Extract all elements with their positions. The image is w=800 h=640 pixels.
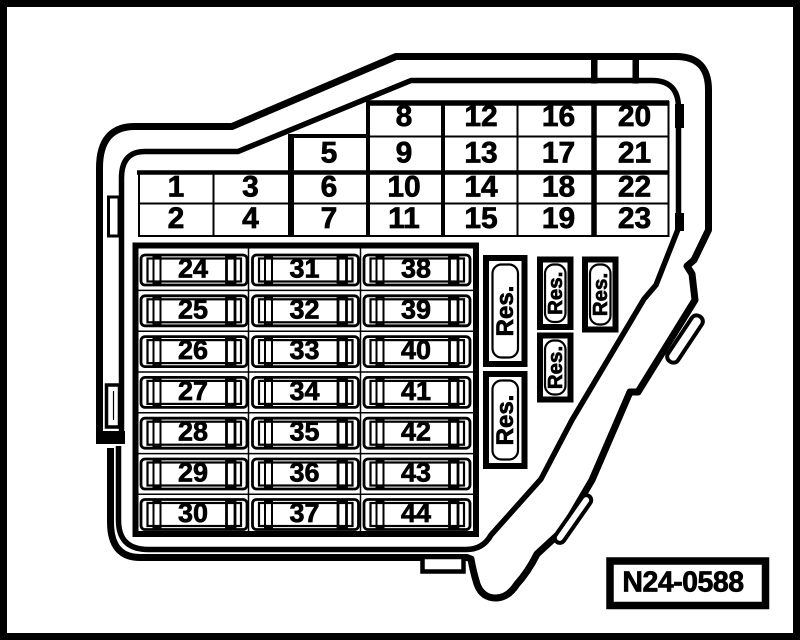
svg-text:10: 10 <box>387 171 420 204</box>
svg-text:41: 41 <box>401 376 431 406</box>
svg-text:36: 36 <box>289 458 319 488</box>
svg-text:20: 20 <box>618 100 651 133</box>
svg-text:19: 19 <box>542 202 575 235</box>
svg-text:3: 3 <box>242 171 259 204</box>
svg-text:22: 22 <box>618 171 651 204</box>
svg-text:40: 40 <box>401 335 431 365</box>
svg-text:1: 1 <box>168 171 185 204</box>
svg-text:15: 15 <box>464 202 497 235</box>
svg-text:37: 37 <box>289 498 319 528</box>
svg-text:Res.: Res. <box>589 273 612 316</box>
svg-text:31: 31 <box>289 254 319 284</box>
svg-text:7: 7 <box>321 202 338 235</box>
svg-text:33: 33 <box>289 335 319 365</box>
svg-text:43: 43 <box>401 458 431 488</box>
svg-text:Res.: Res. <box>492 286 519 337</box>
svg-text:38: 38 <box>401 254 431 284</box>
svg-text:25: 25 <box>178 294 208 324</box>
svg-text:12: 12 <box>464 100 497 133</box>
svg-text:21: 21 <box>618 137 651 170</box>
svg-text:14: 14 <box>464 171 498 204</box>
svg-text:11: 11 <box>388 202 420 235</box>
svg-text:18: 18 <box>542 171 575 204</box>
svg-text:35: 35 <box>289 417 319 447</box>
svg-text:23: 23 <box>618 202 651 235</box>
svg-text:28: 28 <box>178 417 208 447</box>
svg-text:6: 6 <box>321 171 338 204</box>
svg-text:44: 44 <box>401 498 431 528</box>
svg-text:N24-0588: N24-0588 <box>622 567 743 599</box>
svg-text:39: 39 <box>401 294 431 324</box>
svg-text:24: 24 <box>178 254 208 284</box>
svg-text:42: 42 <box>401 417 431 447</box>
svg-text:32: 32 <box>289 294 319 324</box>
svg-text:34: 34 <box>289 376 319 406</box>
svg-text:5: 5 <box>321 137 338 170</box>
svg-text:26: 26 <box>178 335 208 365</box>
svg-text:17: 17 <box>542 137 575 170</box>
svg-text:27: 27 <box>178 376 208 406</box>
svg-text:16: 16 <box>542 100 575 133</box>
svg-text:13: 13 <box>464 137 497 170</box>
svg-text:8: 8 <box>396 100 413 133</box>
svg-text:30: 30 <box>178 498 208 528</box>
svg-text:Res.: Res. <box>544 272 567 315</box>
svg-text:Res.: Res. <box>544 346 567 389</box>
svg-text:2: 2 <box>168 202 185 235</box>
svg-text:9: 9 <box>396 137 413 170</box>
svg-text:Res.: Res. <box>492 395 519 446</box>
svg-text:4: 4 <box>242 202 259 235</box>
svg-text:29: 29 <box>178 458 208 488</box>
